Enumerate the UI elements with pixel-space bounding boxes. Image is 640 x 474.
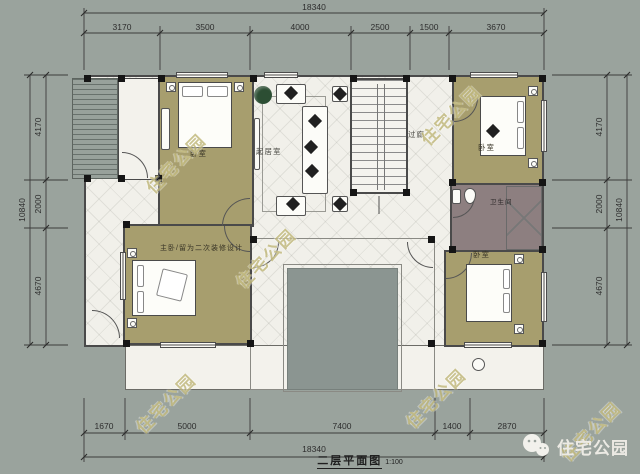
window	[470, 72, 518, 78]
column	[449, 246, 456, 253]
label-master-bedroom: 主卧/留为二次装修设计	[160, 243, 243, 253]
bed	[132, 260, 196, 316]
dim-top-seg: 4000	[278, 22, 322, 32]
column	[428, 236, 435, 243]
stair-center-rail	[377, 84, 385, 190]
tv-cabinet	[254, 118, 260, 170]
dim-bottom-seg: 2870	[485, 421, 529, 431]
column	[350, 189, 357, 196]
dim-right-seg: 2000	[594, 182, 604, 226]
patio-table	[472, 358, 485, 371]
column	[84, 175, 91, 182]
drawing-caption: 二层平面图1:100	[280, 451, 440, 469]
dim-left-total: 10840	[17, 188, 27, 232]
window	[176, 72, 228, 78]
label-bedroom-bottom-right: 卧室	[473, 249, 490, 260]
column	[403, 75, 410, 82]
column	[84, 75, 91, 82]
lower-roof-hatch	[72, 78, 118, 179]
pillow	[182, 86, 203, 97]
dim-top-seg: 3170	[100, 22, 144, 32]
caption-title: 二层平面图	[317, 455, 382, 469]
dim-right-seg: 4170	[594, 105, 604, 149]
dim-left-seg: 2000	[33, 182, 43, 226]
dim-top-seg: 2500	[358, 22, 402, 32]
window	[541, 272, 547, 322]
column	[250, 236, 257, 243]
column	[449, 179, 456, 186]
pillow	[503, 269, 510, 289]
column	[123, 340, 130, 347]
dim-bottom-seg: 7400	[320, 421, 364, 431]
dim-right-seg: 4670	[594, 264, 604, 308]
column	[118, 175, 125, 182]
dim-bottom-seg: 1670	[82, 421, 126, 431]
pillow	[137, 265, 144, 287]
column	[539, 246, 546, 253]
column	[247, 340, 254, 347]
dim-right-total: 10840	[614, 188, 624, 232]
column	[350, 75, 357, 82]
column	[158, 75, 165, 82]
dim-top-seg: 1500	[407, 22, 451, 32]
dim-bottom-seg: 1400	[430, 421, 474, 431]
window	[541, 100, 547, 152]
staircase	[350, 78, 408, 194]
nightstand	[528, 86, 538, 96]
label-living-room: 起居室	[256, 146, 282, 157]
nightstand	[514, 254, 524, 264]
column	[250, 75, 257, 82]
pillow	[517, 101, 524, 123]
nightstand	[127, 318, 137, 328]
column	[539, 179, 546, 186]
blanket	[156, 268, 188, 301]
column	[539, 340, 546, 347]
column	[403, 189, 410, 196]
pillow	[503, 293, 510, 313]
closet	[161, 108, 170, 150]
pillow	[207, 86, 228, 97]
pillow	[137, 291, 144, 313]
column	[118, 75, 125, 82]
nightstand	[528, 158, 538, 168]
window	[464, 342, 512, 348]
nightstand	[234, 82, 244, 92]
caption-scale: 1:100	[385, 459, 403, 466]
window	[264, 72, 298, 78]
column	[123, 221, 130, 228]
courtyard-railing	[283, 264, 402, 392]
dim-left-seg: 4670	[33, 264, 43, 308]
sink	[452, 189, 461, 204]
plant-icon	[254, 86, 272, 104]
dim-top-total: 18340	[292, 2, 336, 12]
column	[449, 75, 456, 82]
dim-top-seg: 3500	[183, 22, 227, 32]
pillow	[517, 127, 524, 149]
label-bathroom: 卫生间	[490, 196, 513, 206]
window	[160, 342, 216, 348]
nightstand	[166, 82, 176, 92]
brand-logo-text: 住宅公园	[557, 434, 629, 459]
nightstand	[514, 324, 524, 334]
window	[120, 252, 126, 300]
bed	[466, 264, 512, 322]
wechat-icon	[521, 433, 551, 459]
dim-top-seg: 3670	[474, 22, 518, 32]
column	[428, 340, 435, 347]
column	[539, 75, 546, 82]
dim-bottom-seg: 5000	[165, 421, 209, 431]
floor-plan-canvas: 18340 3170 3500 4000 2500 1500 3670 1834…	[0, 0, 640, 474]
label-bedroom-top-right: 卧室	[478, 142, 495, 153]
brand-logo: 住宅公园	[521, 433, 629, 459]
nightstand	[127, 248, 137, 258]
dim-left-seg: 4170	[33, 105, 43, 149]
